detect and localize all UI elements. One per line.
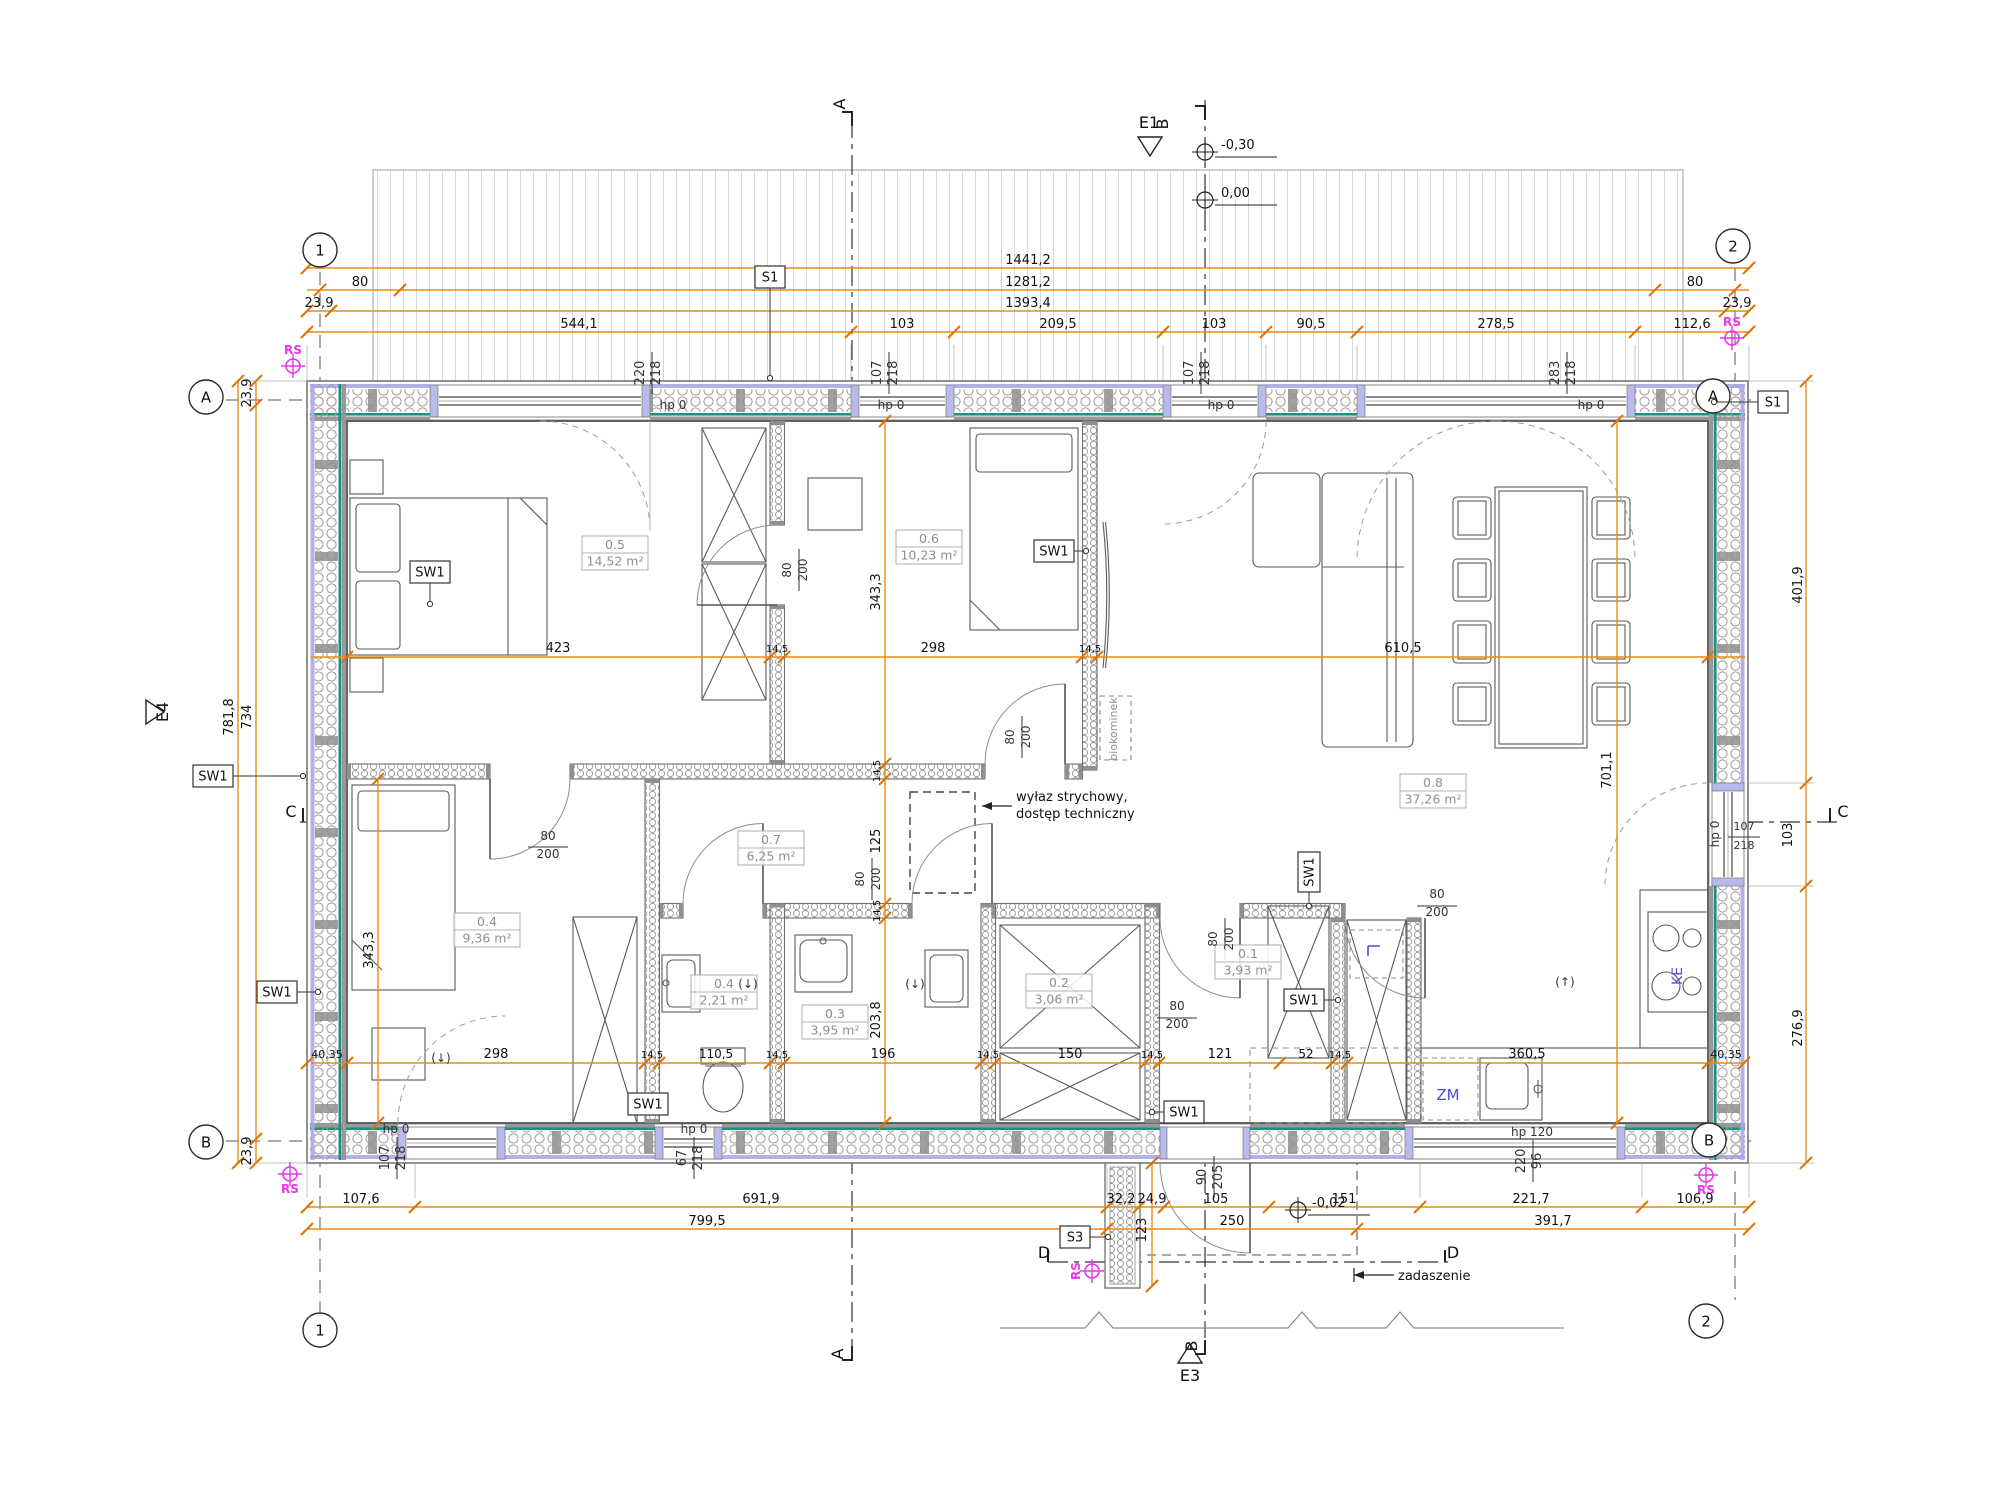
dimension-label: 103	[1781, 823, 1796, 848]
annotation: zadaszenie	[1398, 1269, 1470, 1284]
dimension-label: 610,5	[1384, 641, 1421, 656]
dimension-label: 106,9	[1676, 1192, 1713, 1207]
svg-text:3,06 m²: 3,06 m²	[1035, 992, 1084, 1007]
svg-text:3,93 m²: 3,93 m²	[1224, 963, 1273, 978]
dimension-label: 391,7	[1534, 1214, 1571, 1229]
survey-point-rs: RS	[281, 343, 305, 378]
dimension-label: 701,1	[1600, 751, 1615, 788]
svg-text:0,00: 0,00	[1221, 186, 1250, 201]
svg-text:1: 1	[315, 242, 325, 260]
svg-text:0.3: 0.3	[825, 1006, 845, 1021]
equipment-label: (↓)	[431, 1051, 450, 1065]
dimension-label: 14,5	[977, 1050, 999, 1061]
dimension-label: 125	[869, 829, 884, 854]
svg-text:SW1: SW1	[1169, 1106, 1198, 1121]
grid-axis-marker-B: B	[1692, 1123, 1726, 1157]
level-marker: -0,30	[1192, 138, 1277, 165]
section-letter: E3	[1180, 1366, 1200, 1385]
dimension-label: 103	[1202, 317, 1227, 332]
opening-label: 218	[649, 361, 664, 386]
opening-label: 96	[1530, 1153, 1545, 1170]
dimension-label: 107,6	[342, 1192, 379, 1207]
opening-label: 107	[870, 361, 885, 386]
opening-label: 218	[1198, 361, 1213, 386]
svg-text:6,25 m²: 6,25 m²	[747, 849, 796, 864]
dimension-label: 196	[871, 1047, 896, 1062]
dimension-label: 734	[240, 705, 255, 730]
dimension-label: 121	[1208, 1047, 1233, 1062]
svg-text:SW1: SW1	[198, 770, 227, 785]
opening-label: 90	[1195, 1169, 1210, 1186]
dimension-label: 123	[1135, 1218, 1150, 1243]
dimension-label: 105	[1204, 1192, 1229, 1207]
opening-label: hp 0	[1708, 821, 1722, 848]
opening-label: 200	[537, 847, 560, 861]
svg-text:SW1: SW1	[1303, 857, 1318, 886]
dimension-label: 23,9	[305, 296, 334, 311]
opening-label: 67	[675, 1150, 690, 1167]
svg-text:0.1: 0.1	[1238, 946, 1258, 961]
section-letter: D	[1038, 1243, 1050, 1262]
svg-text:RS: RS	[1723, 315, 1741, 329]
dimension-label: 80	[352, 275, 369, 290]
dimension-label: 343,3	[869, 573, 884, 610]
opening-label: 80	[1206, 931, 1220, 946]
grid-axis-marker-A: A	[1696, 379, 1730, 413]
svg-text:A: A	[201, 389, 212, 407]
svg-text:SW1: SW1	[262, 986, 291, 1001]
opening-label: 200	[796, 559, 810, 582]
room-label-0.5: 0.514,52 m²	[582, 536, 648, 570]
opening-label: 107	[378, 1146, 393, 1171]
dimension-label: 32,2	[1107, 1192, 1136, 1207]
dimension-label: 23,9	[1723, 296, 1752, 311]
svg-text:0.2: 0.2	[1049, 975, 1069, 990]
opening-label: 218	[1564, 361, 1579, 386]
survey-point-rs: RS	[278, 1162, 302, 1196]
svg-text:-0,30: -0,30	[1221, 138, 1255, 153]
ground-break-line	[1000, 1312, 1564, 1328]
svg-text:0.7: 0.7	[761, 832, 781, 847]
svg-text:37,26 m²: 37,26 m²	[1405, 792, 1462, 807]
svg-text:10,23 m²: 10,23 m²	[901, 548, 958, 563]
room-label-0.6: 0.610,23 m²	[896, 530, 962, 564]
dimension-label: 14,5	[872, 900, 883, 922]
section-letter: B	[1182, 1341, 1201, 1352]
grid-axis-marker-1: 1	[303, 1313, 337, 1347]
svg-text:SW1: SW1	[1289, 994, 1318, 1009]
annotation: biokominek	[1107, 697, 1120, 761]
dimension-label: 276,9	[1791, 1009, 1806, 1046]
dimension-label: 90,5	[1297, 317, 1326, 332]
dimension-label: 781,8	[222, 698, 237, 735]
opening-label: 107	[1182, 361, 1197, 386]
tag-sw1: SW1	[193, 765, 306, 787]
dimension-label: 23,9	[240, 1137, 255, 1166]
svg-text:B: B	[1704, 1132, 1714, 1150]
opening-label: hp 0	[1208, 398, 1235, 412]
dimension-label: 151	[1332, 1192, 1357, 1207]
equipment-label: KE	[1670, 967, 1686, 985]
opening-label: 200	[1426, 905, 1449, 919]
svg-text:SW1: SW1	[1039, 545, 1068, 560]
opening-label: hp 0	[878, 398, 905, 412]
svg-text:0.6: 0.6	[919, 531, 939, 546]
room-label-0.7: 0.76,25 m²	[738, 831, 804, 865]
opening-label: 218	[886, 361, 901, 386]
annotation: dostęp techniczny	[1016, 807, 1135, 822]
equipment-label: (↓)	[905, 977, 924, 991]
floor-plan-canvas: 1212AABB-0,300,00-0,02RSRSRSRSRSSW1SW1SW…	[0, 0, 2000, 1500]
grid-axis-marker-2: 2	[1716, 229, 1750, 263]
opening-label: 80	[540, 829, 555, 843]
elevation-marker-e1	[1138, 137, 1162, 156]
annotation: wyłaz strychowy,	[1016, 790, 1128, 805]
dimension-label: 150	[1058, 1047, 1083, 1062]
dimension-label: 1393,4	[1005, 296, 1051, 311]
dimension-label: 691,9	[742, 1192, 779, 1207]
dimension-label: 40,35	[1710, 1048, 1742, 1061]
section-letter: C	[1837, 802, 1848, 821]
equipment-label: ZM	[1436, 1086, 1459, 1104]
dimension-label: 298	[921, 641, 946, 656]
svg-text:0.4: 0.4	[714, 976, 734, 991]
dimension-label: 360,5	[1508, 1047, 1545, 1062]
dimension-label: 14,5	[1079, 644, 1101, 655]
svg-text:2: 2	[1701, 1313, 1711, 1331]
dimension-label: 221,7	[1512, 1192, 1549, 1207]
opening-label: 80	[1169, 999, 1184, 1013]
svg-text:3,95 m²: 3,95 m²	[811, 1023, 860, 1038]
dimension-label: 1441,2	[1005, 253, 1051, 268]
dimension-label: 110,5	[699, 1047, 733, 1061]
opening-label: 80	[1429, 887, 1444, 901]
room-label-0.4: 0.49,36 m²	[454, 913, 520, 947]
section-letter: C	[285, 802, 296, 821]
svg-text:0.5: 0.5	[605, 537, 625, 552]
svg-text:SW1: SW1	[633, 1098, 662, 1113]
svg-text:2: 2	[1728, 238, 1738, 256]
svg-text:1: 1	[315, 1322, 325, 1340]
opening-label: 218	[691, 1146, 706, 1171]
dimension-label: 544,1	[560, 317, 597, 332]
opening-label: 200	[1166, 1017, 1189, 1031]
svg-text:B: B	[201, 1134, 211, 1152]
svg-text:RS: RS	[284, 343, 302, 357]
opening-label: hp 0	[660, 398, 687, 412]
opening-label: 80	[853, 871, 867, 886]
dimension-label: 799,5	[688, 1214, 725, 1229]
svg-text:SW1: SW1	[415, 566, 444, 581]
svg-text:0.8: 0.8	[1423, 775, 1443, 790]
opening-label: 205	[1211, 1165, 1226, 1190]
dimension-label: 401,9	[1791, 566, 1806, 603]
svg-text:S1: S1	[1765, 396, 1782, 411]
opening-label: 80	[780, 562, 794, 577]
opening-label: 80	[1003, 729, 1017, 744]
dimension-label: 298	[484, 1047, 509, 1062]
opening-label: 200	[869, 868, 883, 891]
dimension-label: 112,6	[1673, 317, 1710, 332]
dimension-label: 203,8	[869, 1001, 884, 1038]
tag-sw1: SW1	[628, 1093, 668, 1115]
section-letter: A	[830, 98, 849, 109]
room-label-0.2: 0.23,06 m²	[1026, 974, 1092, 1008]
opening-label: 200	[1222, 928, 1236, 951]
room-label-0.8: 0.837,26 m²	[1400, 774, 1466, 808]
dimension-label: 14,5	[641, 1050, 663, 1061]
dimension-label: 14,5	[766, 1050, 788, 1061]
opening-label: 218	[1734, 839, 1755, 852]
grid-axis-marker-1: 1	[303, 233, 337, 267]
opening-label: 220	[1514, 1149, 1529, 1174]
grid-axis-marker-A: A	[189, 380, 223, 414]
dimension-label: 209,5	[1039, 317, 1076, 332]
svg-text:S1: S1	[762, 271, 779, 286]
opening-label: hp 0	[1578, 398, 1605, 412]
svg-text:9,36 m²: 9,36 m²	[463, 931, 512, 946]
equipment-label: (↑)	[1555, 975, 1574, 989]
svg-text:RS: RS	[281, 1182, 299, 1196]
dimension-label: 14,5	[1329, 1050, 1351, 1061]
grid-axis-marker-B: B	[189, 1125, 223, 1159]
opening-label: 220	[633, 361, 648, 386]
dimension-label: 14,5	[872, 760, 883, 782]
opening-label: hp 120	[1511, 1125, 1553, 1139]
section-letter: D	[1447, 1243, 1459, 1262]
equipment-label: (↓)	[738, 977, 757, 991]
svg-text:RS: RS	[1069, 1262, 1083, 1280]
section-letter: E4	[153, 702, 172, 722]
dimension-label: 14,5	[766, 644, 788, 655]
dimension-label: 24,9	[1138, 1192, 1167, 1207]
dimension-label: 103	[890, 317, 915, 332]
dimension-label: 278,5	[1477, 317, 1514, 332]
svg-text:S3: S3	[1067, 1231, 1084, 1246]
dimension-label: 14,5	[1141, 1050, 1163, 1061]
svg-text:0.4: 0.4	[477, 914, 497, 929]
opening-label: hp 0	[681, 1122, 708, 1136]
grid-axis-marker-2: 2	[1689, 1304, 1723, 1338]
opening-label: hp 0	[383, 1122, 410, 1136]
opening-label: 283	[1548, 361, 1563, 386]
dimension-label: 40,35	[311, 1048, 343, 1061]
dimension-label: 1281,2	[1005, 275, 1051, 290]
dimension-label: 343,3	[362, 931, 377, 968]
dimension-label: 23,9	[240, 379, 255, 408]
opening-label: 200	[1019, 726, 1033, 749]
dimension-label: 423	[546, 641, 571, 656]
dimension-label: 80	[1687, 275, 1704, 290]
dimension-label: 52	[1298, 1047, 1313, 1061]
opening-label: 218	[394, 1146, 409, 1171]
room-label-0.3: 0.33,95 m²	[802, 1005, 868, 1039]
svg-text:2,21 m²: 2,21 m²	[700, 993, 749, 1008]
section-letter: A	[828, 1348, 847, 1359]
dimension-label: 250	[1220, 1214, 1245, 1229]
section-letter: E1	[1139, 113, 1159, 132]
svg-text:14,52 m²: 14,52 m²	[587, 554, 644, 569]
opening-label: 107	[1734, 820, 1755, 833]
